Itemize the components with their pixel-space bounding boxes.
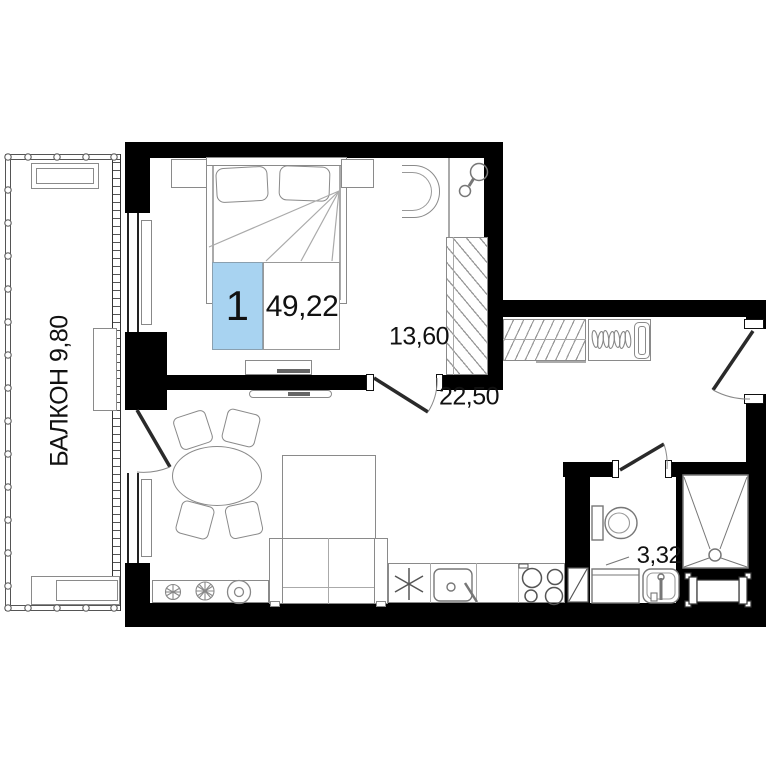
entrance-jamb-top <box>744 319 764 329</box>
wall-hall-top <box>484 300 766 317</box>
sofa-armrest-right <box>374 538 388 604</box>
hall-bench-line <box>536 361 586 363</box>
bed-headboard <box>206 157 347 166</box>
sofa-foot-left <box>270 601 280 607</box>
balcony-rail-top <box>5 154 121 160</box>
window-bedroom <box>127 213 139 332</box>
total-area-label: 49,22 <box>266 290 339 324</box>
window-living <box>127 473 139 563</box>
wall-bath-bottom-mass <box>676 568 766 603</box>
wall-bottom <box>125 603 766 627</box>
bedroom-door-jamb-left <box>366 374 374 391</box>
balcony-rail-left <box>5 154 11 611</box>
wall-bath-left <box>565 462 590 603</box>
entrance-door <box>713 331 753 399</box>
tv-cabinet-screen <box>277 369 310 373</box>
sofa-armrest-left <box>269 538 283 604</box>
pillow-right <box>278 165 330 202</box>
balcony-cabinet-right <box>93 328 117 411</box>
toilet <box>592 506 637 540</box>
counter-divider-3 <box>518 563 519 603</box>
bathroom-sink <box>643 569 679 603</box>
wall-left-pier <box>125 332 167 410</box>
sofa-divider <box>328 538 329 604</box>
balcony-cabinet-bottom-inner <box>56 580 118 601</box>
balcony-cabinet-top-inner <box>36 168 94 184</box>
wall-left-bottom <box>125 563 150 627</box>
wall-bedroom-bottom-left <box>148 375 373 390</box>
hall-bench-inner <box>638 326 646 355</box>
bathroom-area-label: 3,32 <box>637 542 682 570</box>
nightstand-left <box>171 159 207 188</box>
entrance-jamb-bottom <box>744 394 764 404</box>
bedroom-door <box>374 378 437 412</box>
sofa-seat-line <box>283 587 374 588</box>
shower <box>683 475 748 568</box>
bedroom-partition-line <box>448 158 450 237</box>
nightstand-right <box>341 159 374 188</box>
counter-left <box>152 580 269 603</box>
counter-divider-2 <box>476 563 477 603</box>
counter-divider-1 <box>430 563 431 603</box>
window-bedroom-sill <box>141 220 152 325</box>
dining-table <box>172 446 262 506</box>
tv-living-base <box>288 392 310 396</box>
wardrobe-hall-rail <box>503 339 586 340</box>
balcony-door <box>137 410 170 472</box>
balcony-rail-bottom <box>5 605 121 611</box>
wall-left-top <box>125 142 150 213</box>
chair-bottom-right <box>224 500 264 540</box>
floor-plan: БАЛКОН 9,80 1 49,22 13,60 22,50 3,32 <box>0 0 768 768</box>
bedroom-area-label: 13,60 <box>389 323 449 352</box>
pillow-left <box>215 166 269 204</box>
bath-door-jamb-left <box>612 460 619 478</box>
wall-top <box>125 142 503 158</box>
unit-number-label: 1 <box>226 282 249 330</box>
window-living-sill <box>141 479 152 557</box>
wardrobe-bedroom-door-line <box>453 237 454 375</box>
chair-top-left <box>172 409 215 452</box>
washing-machine <box>592 557 639 603</box>
sofa-foot-right <box>376 601 386 607</box>
bathroom-door <box>620 444 667 470</box>
chair-bottom-left <box>174 499 216 541</box>
sofa-chaise <box>282 455 376 539</box>
chair-top-right <box>220 407 261 448</box>
balcony-label: БАЛКОН 9,80 <box>46 315 75 466</box>
kitchen-living-area-label: 22,50 <box>439 383 499 412</box>
bath-door-jamb-right <box>665 460 672 478</box>
